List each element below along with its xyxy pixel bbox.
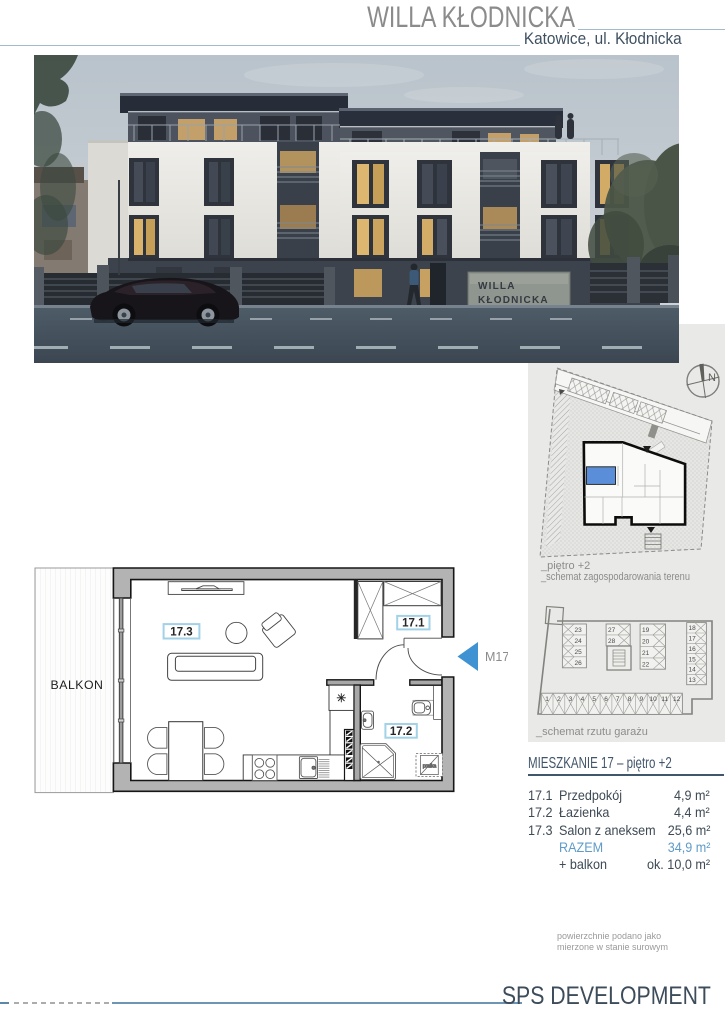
svg-text:28: 28 — [608, 638, 616, 645]
svg-text:2: 2 — [557, 696, 561, 703]
svg-text:26: 26 — [575, 660, 583, 667]
svg-text:11: 11 — [661, 696, 668, 703]
svg-text:18: 18 — [689, 625, 697, 632]
svg-text:KŁODNICKA: KŁODNICKA — [478, 295, 549, 306]
svg-text:6: 6 — [604, 696, 608, 703]
svg-text:10: 10 — [649, 696, 657, 703]
svg-text:9: 9 — [639, 696, 643, 703]
svg-text:25: 25 — [575, 649, 583, 656]
svg-text:17.2: 17.2 — [390, 726, 412, 738]
svg-text:pralka: pralka — [423, 764, 437, 770]
svg-text:3: 3 — [569, 696, 573, 703]
svg-text:13: 13 — [689, 677, 697, 684]
svg-text:19: 19 — [642, 627, 650, 634]
svg-text:22: 22 — [642, 661, 650, 668]
svg-text:M17: M17 — [485, 650, 508, 664]
svg-text:WILLA: WILLA — [478, 281, 516, 292]
svg-text:7: 7 — [616, 696, 620, 703]
svg-text:N: N — [708, 372, 716, 384]
svg-text:5: 5 — [592, 696, 596, 703]
svg-text:8: 8 — [628, 696, 632, 703]
svg-text:17.3: 17.3 — [170, 627, 192, 639]
svg-text:24: 24 — [575, 638, 583, 645]
svg-text:12: 12 — [673, 696, 681, 703]
svg-text:20: 20 — [642, 639, 650, 646]
svg-text:17.1: 17.1 — [402, 618, 425, 630]
svg-text:BALKON: BALKON — [51, 678, 104, 692]
svg-text:15: 15 — [689, 656, 697, 663]
svg-text:27: 27 — [608, 627, 616, 634]
svg-text:16: 16 — [689, 646, 697, 653]
svg-text:4: 4 — [581, 696, 585, 703]
svg-text:17: 17 — [689, 636, 697, 643]
svg-text:14: 14 — [689, 667, 697, 674]
svg-text:23: 23 — [575, 627, 583, 634]
svg-text:21: 21 — [642, 650, 650, 657]
svg-text:1: 1 — [545, 696, 549, 703]
